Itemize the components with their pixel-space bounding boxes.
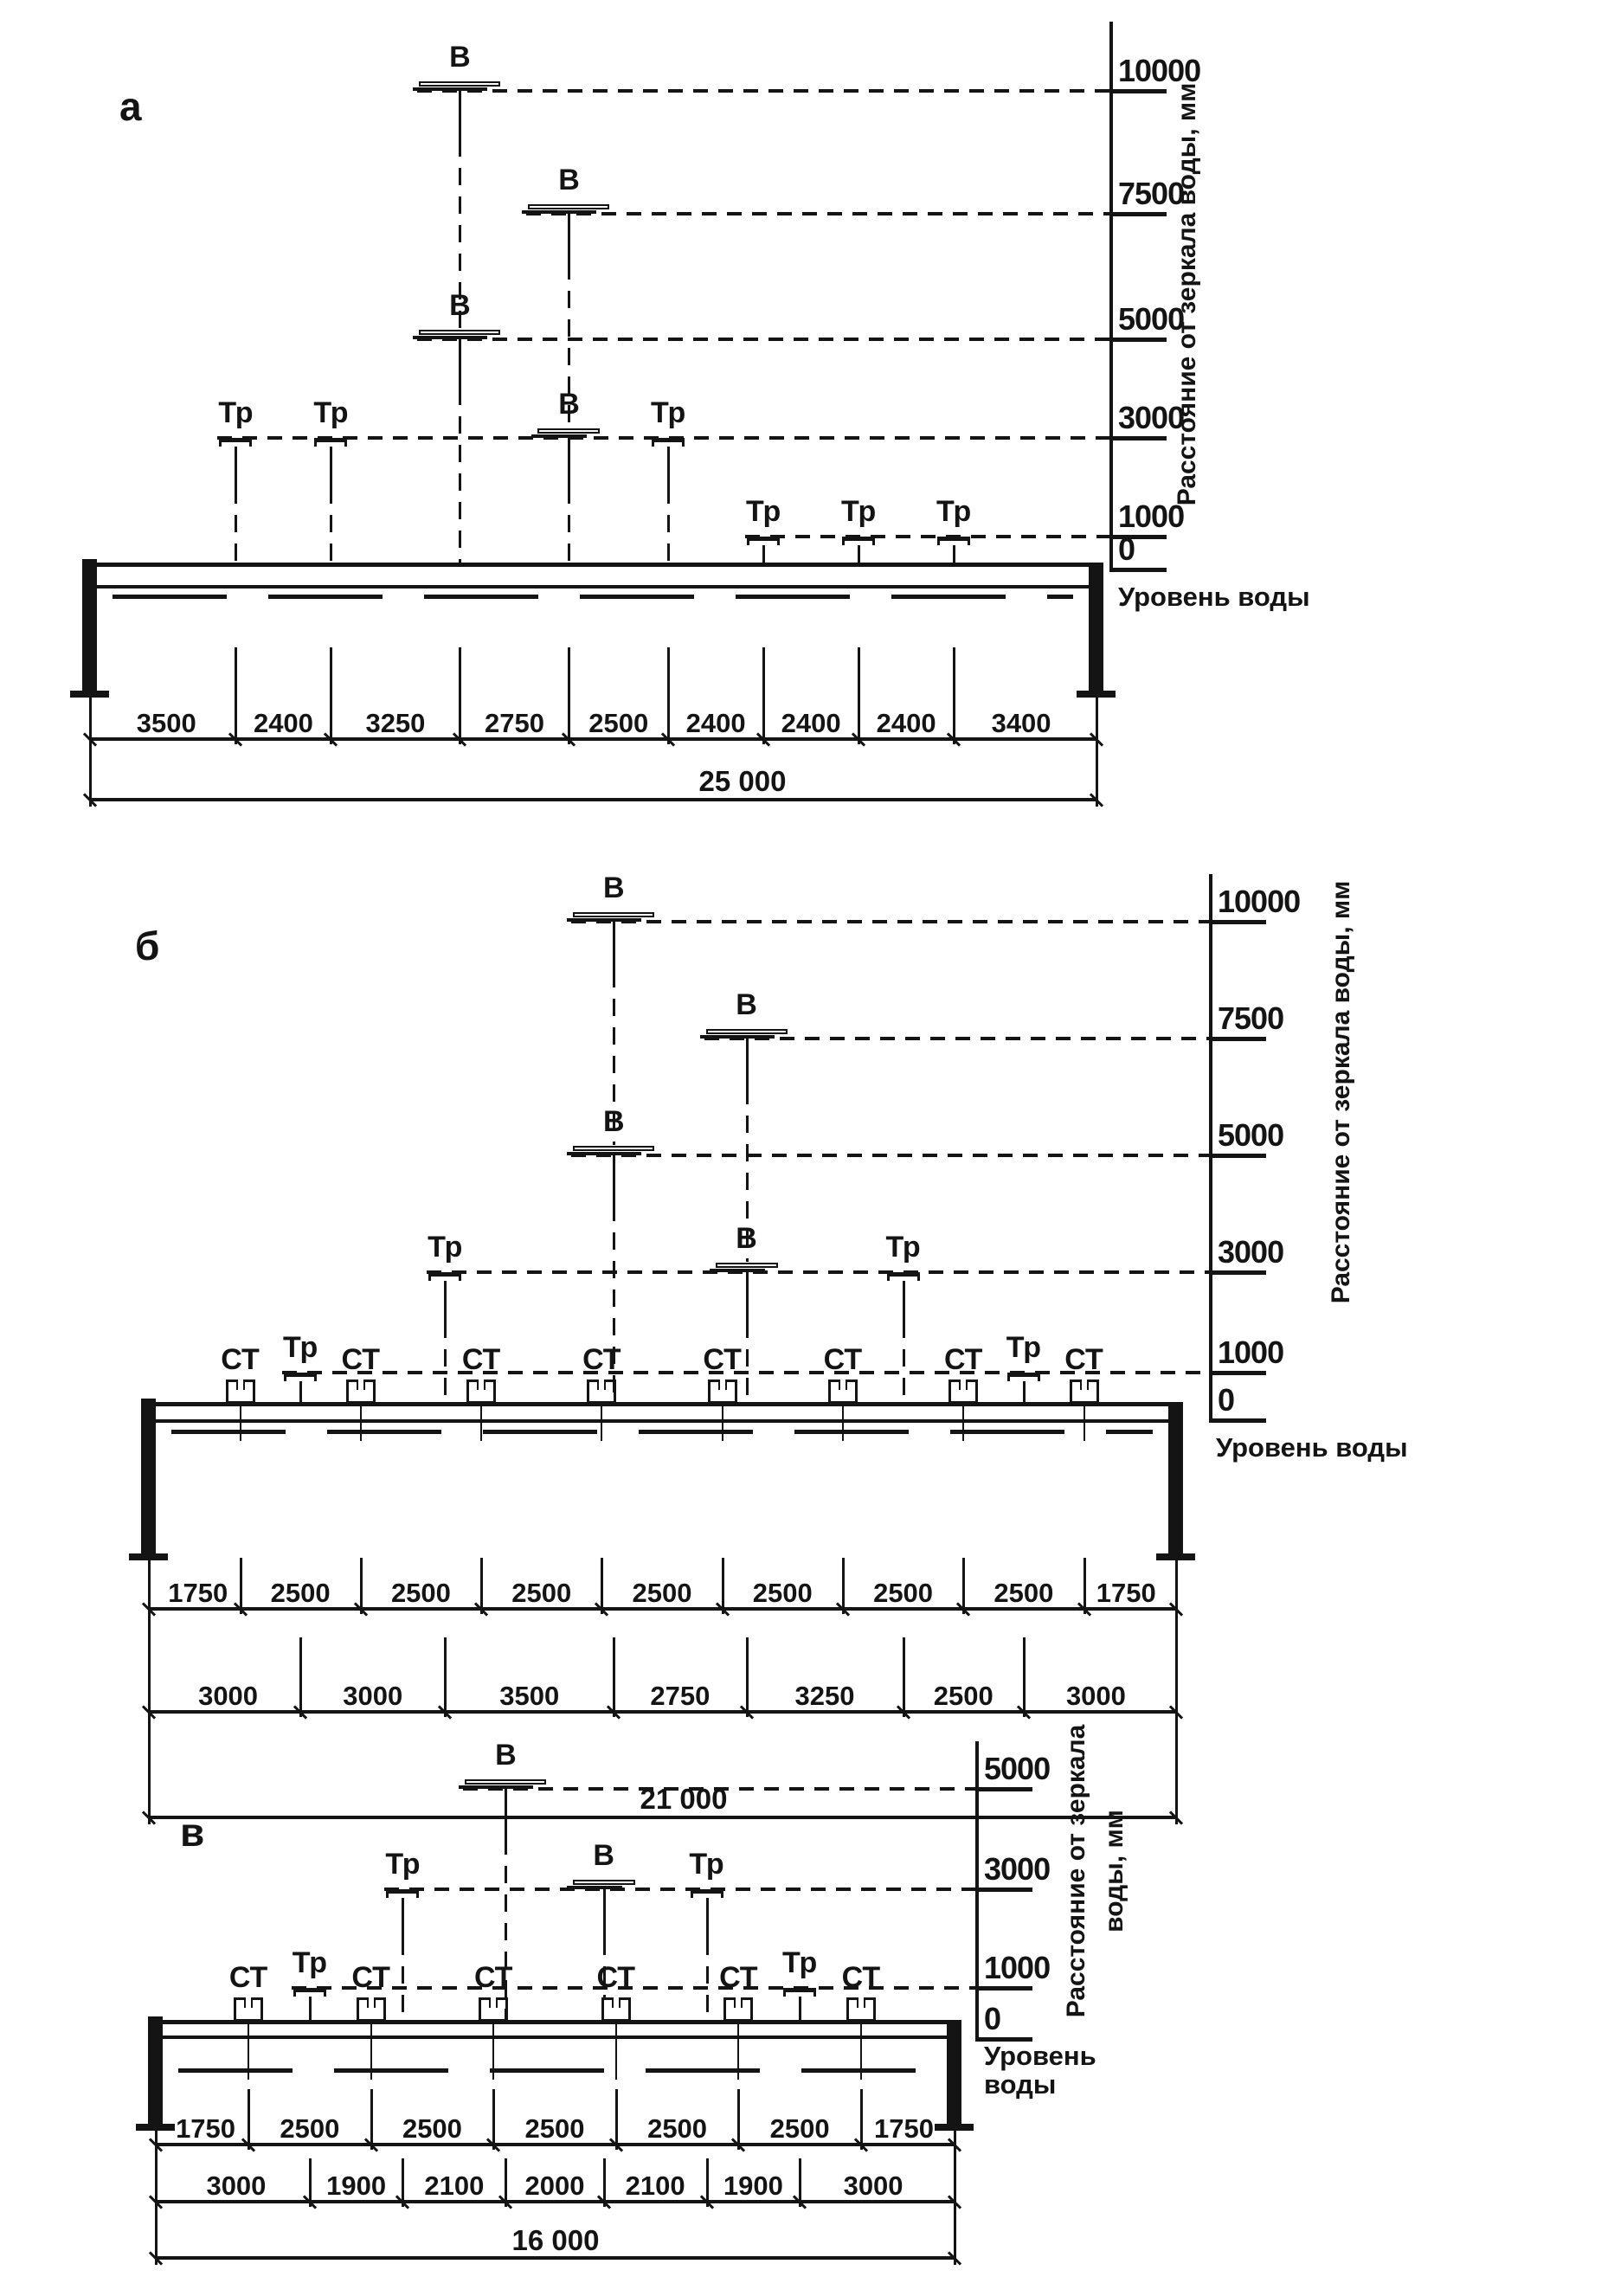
fixture-stem-v	[706, 1898, 709, 1938]
fixture-floodlight-v-slat-v	[459, 1785, 533, 1789]
fixture-stem-b	[903, 1281, 905, 1321]
fixture-loudspeaker-tr-v	[783, 1988, 816, 1997]
axis-tick-label-v: 1000	[984, 1950, 1050, 1986]
wall-extension-right-v	[954, 2131, 956, 2265]
axis-tick-a	[1109, 436, 1167, 441]
dim-label-v: 1900	[723, 2171, 783, 2202]
axis-tick-label-v: 5000	[984, 1751, 1050, 1787]
section-label-a: а	[119, 83, 142, 130]
wall-extension-right-a	[1096, 698, 1098, 807]
dim-label-a: 2400	[254, 708, 313, 739]
dim-label-v: 1750	[874, 2113, 934, 2145]
dim-extension-b	[1023, 1637, 1026, 1717]
pool-rim-top-v	[148, 2020, 961, 2024]
dim-label-b: 2750	[650, 1681, 710, 1712]
fixture-stem-a	[235, 447, 237, 486]
fixture-loudspeaker-tr-a	[219, 438, 252, 447]
axis-tick-v	[975, 1888, 1032, 1892]
fixture-speaker-st-notch-v	[489, 1997, 498, 2008]
fixture-speaker-st-notch-b	[839, 1380, 847, 1390]
dim-label-a: 3250	[365, 708, 425, 739]
fixture-floodlight-v-a	[419, 330, 500, 335]
level-dash-line-b	[427, 1270, 1209, 1274]
fixture-floodlight-v-a	[528, 204, 609, 209]
total-dim-label-a: 25 000	[699, 765, 787, 798]
axis-tick-b	[1209, 1270, 1266, 1275]
axis-title-v: воды, мм	[1100, 1810, 1129, 1933]
axis-tick-b	[1209, 1037, 1266, 1041]
fixture-stem-b	[240, 1406, 241, 1441]
axis-title-v: Расстояние от зеркала	[1062, 1725, 1091, 2018]
fixture-stem-b	[842, 1406, 844, 1441]
fixture-stem-b	[746, 1039, 749, 1087]
dim-extension-b	[360, 1558, 363, 1614]
dim-extension-b	[746, 1637, 749, 1717]
axis-title-b: Расстояние от зеркала воды, мм	[1327, 881, 1356, 1304]
fixture-floodlight-v-slat-b	[567, 918, 641, 922]
dim-extension-b	[1084, 1558, 1086, 1614]
wall-extension-left-v	[155, 2131, 158, 2265]
fixture-label-tr-v: Тр	[293, 1946, 327, 1980]
dim-label-b: 2500	[934, 1681, 993, 1712]
dim-label-b: 3000	[343, 1681, 402, 1712]
section-label-b: б	[135, 923, 159, 969]
axis-tick-a	[1109, 89, 1167, 93]
fixture-label-v-b: В	[736, 1222, 757, 1256]
fixture-label-st-b: СТ	[824, 1343, 862, 1377]
dim-label-b: 2500	[511, 1578, 571, 1609]
dim-extension-a	[459, 647, 461, 744]
fixture-label-st-b: СТ	[342, 1343, 380, 1377]
fixture-speaker-st-notch-b	[597, 1380, 606, 1390]
fixture-stem-v	[603, 1889, 606, 1938]
axis-title-a: Расстояние от зеркала воды, мм	[1173, 83, 1202, 506]
fixture-stem-dashed-a	[330, 486, 332, 563]
fixture-label-v-a: В	[558, 164, 580, 197]
axis-tick-a	[1109, 568, 1167, 572]
fixture-label-st-v: СТ	[229, 1961, 267, 1995]
fixture-label-tr-a: Тр	[841, 495, 876, 529]
fixture-label-st-v: СТ	[719, 1961, 757, 1995]
fixture-loudspeaker-tr-a	[314, 438, 347, 447]
fixture-label-v-b: В	[736, 988, 757, 1022]
axis-tick-label-v: 0	[984, 2001, 1000, 2037]
pool-wall-foot-left-a	[70, 691, 109, 698]
fixture-label-tr-a: Тр	[746, 495, 781, 529]
fixture-stem-b	[722, 1406, 723, 1441]
fixture-floodlight-v-slat-a	[531, 434, 587, 438]
dim-label-a: 2400	[686, 708, 746, 739]
fixture-stem-v	[309, 1997, 312, 2020]
fixture-stem-b	[1023, 1381, 1026, 1402]
dim-label-a: 2400	[781, 708, 841, 739]
fixture-label-tr-b: Тр	[885, 1231, 920, 1264]
section-label-v: в	[180, 1809, 204, 1855]
pool-wall-foot-right-v	[935, 2124, 974, 2131]
dim-label-b: 2500	[391, 1578, 451, 1609]
fixture-stem-a	[568, 214, 570, 262]
dim-extension-v	[370, 2089, 373, 2150]
pool-wall-left-b	[141, 1399, 156, 1553]
level-dash-line-a	[417, 89, 1109, 93]
level-dash-line-b	[571, 1154, 1209, 1157]
dim-label-v: 2500	[770, 2113, 830, 2145]
fixture-label-st-b: СТ	[703, 1343, 741, 1377]
dim-extension-b	[903, 1637, 905, 1717]
dim-extension-a	[667, 647, 670, 744]
fixture-label-tr-b: Тр	[1006, 1331, 1041, 1365]
axis-tick-b	[1209, 1154, 1266, 1158]
fixture-loudspeaker-tr-v	[386, 1889, 419, 1898]
dim-label-v: 1750	[176, 2113, 235, 2145]
fixture-floodlight-v-a	[537, 428, 600, 434]
fixture-floodlight-v-a	[419, 81, 500, 87]
axis-tick-label-v: 3000	[984, 1851, 1050, 1888]
fixture-floodlight-v-slat-b	[700, 1035, 775, 1039]
level-dash-line-a	[417, 338, 1109, 341]
pool-wall-foot-right-b	[1156, 1553, 1195, 1560]
axis-tick-b	[1209, 920, 1266, 924]
fixture-stem-a	[330, 447, 332, 486]
fixture-stem-dashed-v	[505, 1837, 507, 2020]
fixture-floodlight-v-slat-a	[413, 87, 487, 91]
fixture-stem-dashed-a	[235, 486, 237, 563]
axis-line-a	[1109, 22, 1113, 569]
dim-label-v: 2100	[424, 2171, 484, 2202]
level-dash-line-a	[745, 535, 1109, 538]
dim-label-v: 2500	[525, 2113, 585, 2145]
fixture-label-v-a: В	[558, 388, 580, 421]
fixture-label-v-v: В	[495, 1739, 517, 1772]
dim-extension-b	[613, 1637, 615, 1717]
dim-label-v: 3000	[206, 2171, 266, 2202]
fixture-label-v-b: В	[603, 871, 625, 905]
total-dim-line-b	[149, 1816, 1176, 1819]
dim-label-v: 1900	[326, 2171, 386, 2202]
fixture-floodlight-v-slat-a	[413, 336, 487, 339]
fixture-speaker-st-notch-b	[718, 1380, 727, 1390]
level-dash-line-v	[384, 1888, 975, 1891]
fixture-loudspeaker-tr-a	[842, 537, 875, 545]
dim-label-v: 2500	[280, 2113, 339, 2145]
fixture-label-v-b: В	[603, 1105, 625, 1139]
dim-extension-v	[615, 2089, 618, 2150]
dim-extension-a	[235, 647, 237, 744]
wall-extension-right-b	[1175, 1560, 1178, 1824]
wall-extension-left-a	[89, 698, 92, 807]
water-surface-line-v	[178, 2068, 931, 2073]
fixture-label-tr-v: Тр	[385, 1848, 420, 1881]
fixture-stem-b	[746, 1272, 749, 1321]
fixture-label-st-v: СТ	[597, 1961, 635, 1995]
axis-tick-label-b: 3000	[1218, 1234, 1283, 1270]
fixture-stem-dashed-b	[613, 1204, 615, 1402]
dim-label-b: 2500	[753, 1578, 813, 1609]
axis-tick-b	[1209, 1418, 1266, 1423]
fixture-stem-v	[860, 2024, 862, 2080]
fixture-stem-dashed-b	[444, 1321, 447, 1402]
dim-extension-v	[737, 2089, 740, 2150]
dim-label-b: 1750	[168, 1578, 228, 1609]
fixture-floodlight-v-b	[573, 1146, 654, 1151]
fixture-stem-v	[737, 2024, 739, 2080]
dim-label-a: 3500	[137, 708, 196, 739]
fixture-floodlight-v-slat-b	[567, 1152, 641, 1155]
fixture-label-tr-b: Тр	[428, 1231, 462, 1264]
total-dim-line-a	[90, 798, 1096, 801]
fixture-stem-b	[1084, 1406, 1085, 1441]
dim-extension-b	[299, 1637, 302, 1717]
dim-extension-a	[330, 647, 332, 744]
fixture-stem-v	[370, 2024, 372, 2080]
pool-rim-inner-v	[163, 2036, 947, 2039]
level-dash-line-v	[463, 1787, 975, 1791]
dim-extension-a	[568, 647, 570, 744]
axis-tick-label-b: 1000	[1218, 1335, 1283, 1371]
axis-tick-v	[975, 1787, 1032, 1791]
dim-label-a: 2500	[588, 708, 648, 739]
water-level-label-v: Уровень	[984, 2041, 1096, 2072]
fixture-label-v-a: В	[449, 41, 471, 74]
fixture-floodlight-v-slat-a	[522, 210, 596, 214]
fixture-stem-v	[248, 2024, 249, 2080]
dim-label-b: 2500	[993, 1578, 1053, 1609]
pool-wall-right-v	[947, 2022, 961, 2124]
fixture-stem-b	[962, 1406, 964, 1441]
dim-label-b: 3250	[795, 1681, 855, 1712]
axis-tick-a	[1109, 338, 1167, 342]
level-dash-line-a	[526, 212, 1109, 215]
fixture-speaker-st-notch-b	[236, 1380, 245, 1390]
fixture-floodlight-v-slat-v	[567, 1886, 622, 1889]
fixture-label-tr-a: Тр	[218, 396, 253, 430]
axis-tick-label-b: 7500	[1218, 1000, 1283, 1037]
dim-extension-a	[953, 647, 955, 744]
schematic-figure: а1000075005000300010000Расстояние от зер…	[0, 0, 1614, 2296]
fixture-stem-a	[459, 339, 461, 388]
fixture-stem-dashed-b	[903, 1321, 905, 1402]
pool-wall-foot-right-a	[1077, 691, 1116, 698]
fixture-stem-b	[360, 1406, 362, 1441]
dim-label-v: 2500	[647, 2113, 707, 2145]
fixture-speaker-st-notch-b	[357, 1380, 365, 1390]
fixture-speaker-st-notch-b	[1080, 1380, 1089, 1390]
level-dash-line-b	[571, 920, 1209, 923]
fixture-stem-b	[613, 922, 615, 970]
pool-wall-foot-left-b	[129, 1553, 168, 1560]
fixture-stem-b	[299, 1381, 302, 1402]
dim-extension-b	[842, 1558, 845, 1614]
pool-wall-right-b	[1168, 1404, 1183, 1553]
dim-extension-v	[248, 2089, 250, 2150]
pool-wall-foot-left-v	[136, 2124, 175, 2131]
fixture-stem-dashed-v	[402, 1938, 404, 2020]
dim-label-a: 2400	[877, 708, 936, 739]
fixture-stem-a	[953, 545, 955, 563]
fixture-label-st-b: СТ	[462, 1343, 500, 1377]
fixture-stem-dashed-b	[746, 1321, 749, 1402]
fixture-label-st-v: СТ	[351, 1961, 389, 1995]
fixture-loudspeaker-tr-b	[284, 1373, 317, 1381]
axis-tick-a	[1109, 212, 1167, 216]
fixture-floodlight-v-v	[465, 1779, 546, 1785]
dim-label-v: 3000	[844, 2171, 903, 2202]
axis-tick-v	[975, 1986, 1032, 1991]
fixture-loudspeaker-tr-a	[937, 537, 970, 545]
dim-label-a: 2750	[485, 708, 544, 739]
dim-label-b: 1750	[1096, 1578, 1156, 1609]
fixture-speaker-st-notch-v	[367, 1997, 376, 2008]
fixture-stem-dashed-a	[568, 486, 570, 563]
fixture-label-st-v: СТ	[842, 1961, 880, 1995]
fixture-speaker-st-notch-v	[244, 1997, 253, 2008]
fixture-floodlight-v-b	[706, 1029, 788, 1034]
fixture-floodlight-v-v	[573, 1880, 635, 1885]
fixture-stem-dashed-a	[667, 486, 670, 563]
level-dash-line-b	[704, 1037, 1210, 1040]
fixture-floodlight-v-b	[573, 912, 654, 917]
total-dim-label-v: 16 000	[512, 2224, 600, 2257]
fixture-stem-a	[858, 545, 860, 563]
fixture-label-tr-a: Тр	[651, 396, 685, 430]
fixture-floodlight-v-b	[716, 1263, 778, 1268]
axis-tick-label-b: 5000	[1218, 1117, 1283, 1154]
dim-extension-b	[722, 1558, 724, 1614]
fixture-speaker-st-notch-b	[959, 1380, 968, 1390]
fixture-stem-v	[615, 2024, 617, 2080]
wall-extension-left-b	[148, 1560, 151, 1824]
fixture-loudspeaker-tr-v	[691, 1889, 723, 1898]
pool-wall-left-v	[148, 2016, 163, 2124]
fixture-stem-v	[492, 2024, 494, 2080]
dim-extension-v	[860, 2089, 863, 2150]
dim-extension-b	[601, 1558, 603, 1614]
pool-rim-inner-a	[97, 585, 1089, 588]
fixture-loudspeaker-tr-a	[652, 438, 685, 447]
dim-extension-b	[444, 1637, 447, 1717]
fixture-stem-a	[667, 447, 670, 486]
pool-rim-top-b	[141, 1402, 1183, 1406]
fixture-label-tr-v: Тр	[689, 1848, 723, 1881]
dim-label-b: 2500	[271, 1578, 331, 1609]
fixture-loudspeaker-tr-b	[428, 1272, 461, 1281]
water-level-label-a: Уровень воды	[1118, 582, 1310, 613]
dim-label-v: 2100	[626, 2171, 685, 2202]
fixture-label-st-b: СТ	[221, 1343, 259, 1377]
fixture-stem-a	[568, 438, 570, 486]
dim-extension-b	[962, 1558, 965, 1614]
fixture-stem-b	[480, 1406, 482, 1441]
fixture-stem-b	[601, 1406, 602, 1441]
axis-tick-label-b: 10000	[1218, 884, 1300, 920]
pool-rim-top-a	[82, 563, 1103, 567]
water-surface-line-b	[171, 1430, 1153, 1434]
water-level-label-v: воды	[984, 2069, 1056, 2100]
fixture-speaker-st-notch-v	[857, 1997, 865, 2008]
dim-label-v: 2500	[402, 2113, 462, 2145]
dim-label-v: 2000	[525, 2171, 585, 2202]
pool-wall-left-a	[82, 559, 97, 691]
fixture-stem-dashed-v	[706, 1938, 709, 2020]
fixture-stem-b	[613, 1155, 615, 1204]
water-level-label-b: Уровень воды	[1216, 1432, 1408, 1463]
fixture-label-v-v: В	[593, 1839, 614, 1873]
fixture-label-st-b: СТ	[944, 1343, 982, 1377]
dim-extension-a	[858, 647, 860, 744]
pool-wall-right-a	[1089, 564, 1103, 691]
water-surface-line-a	[113, 595, 1073, 599]
dim-extension-a	[762, 647, 765, 744]
axis-line-b	[1209, 874, 1212, 1420]
fixture-loudspeaker-tr-b	[887, 1272, 920, 1281]
dim-label-b: 3000	[1066, 1681, 1126, 1712]
fixture-label-tr-a: Тр	[936, 495, 971, 529]
pool-rim-inner-b	[156, 1419, 1168, 1423]
dim-label-b: 2500	[873, 1578, 933, 1609]
dim-label-b: 2500	[633, 1578, 692, 1609]
axis-tick-b	[1209, 1371, 1266, 1375]
fixture-speaker-st-notch-v	[734, 1997, 743, 2008]
fixture-stem-v	[402, 1898, 404, 1938]
fixture-speaker-st-notch-v	[612, 1997, 621, 2008]
fixture-label-v-a: В	[449, 289, 471, 323]
fixture-stem-a	[459, 91, 461, 139]
fixture-stem-v	[505, 1789, 507, 1837]
fixture-stem-b	[444, 1281, 447, 1321]
dim-label-b: 3000	[198, 1681, 258, 1712]
fixture-loudspeaker-tr-v	[293, 1988, 326, 1997]
axis-tick-label-b: 0	[1218, 1382, 1234, 1418]
fixture-loudspeaker-tr-a	[747, 537, 780, 545]
fixture-label-st-b: СТ	[1064, 1343, 1103, 1377]
fixture-loudspeaker-tr-b	[1007, 1373, 1040, 1381]
dim-extension-b	[480, 1558, 483, 1614]
dim-extension-b	[240, 1558, 242, 1614]
fixture-label-tr-a: Тр	[313, 396, 348, 430]
fixture-label-tr-v: Тр	[782, 1946, 817, 1980]
axis-tick-label-a: 0	[1118, 531, 1135, 568]
fixture-stem-a	[762, 545, 765, 563]
fixture-floodlight-v-slat-b	[710, 1269, 765, 1272]
fixture-stem-dashed-a	[459, 388, 461, 563]
dim-label-a: 3400	[992, 708, 1051, 739]
fixture-label-tr-b: Тр	[283, 1331, 318, 1365]
fixture-speaker-st-notch-b	[477, 1380, 485, 1390]
dim-label-b: 3500	[499, 1681, 559, 1712]
dim-extension-v	[492, 2089, 495, 2150]
fixture-stem-v	[799, 1997, 801, 2020]
